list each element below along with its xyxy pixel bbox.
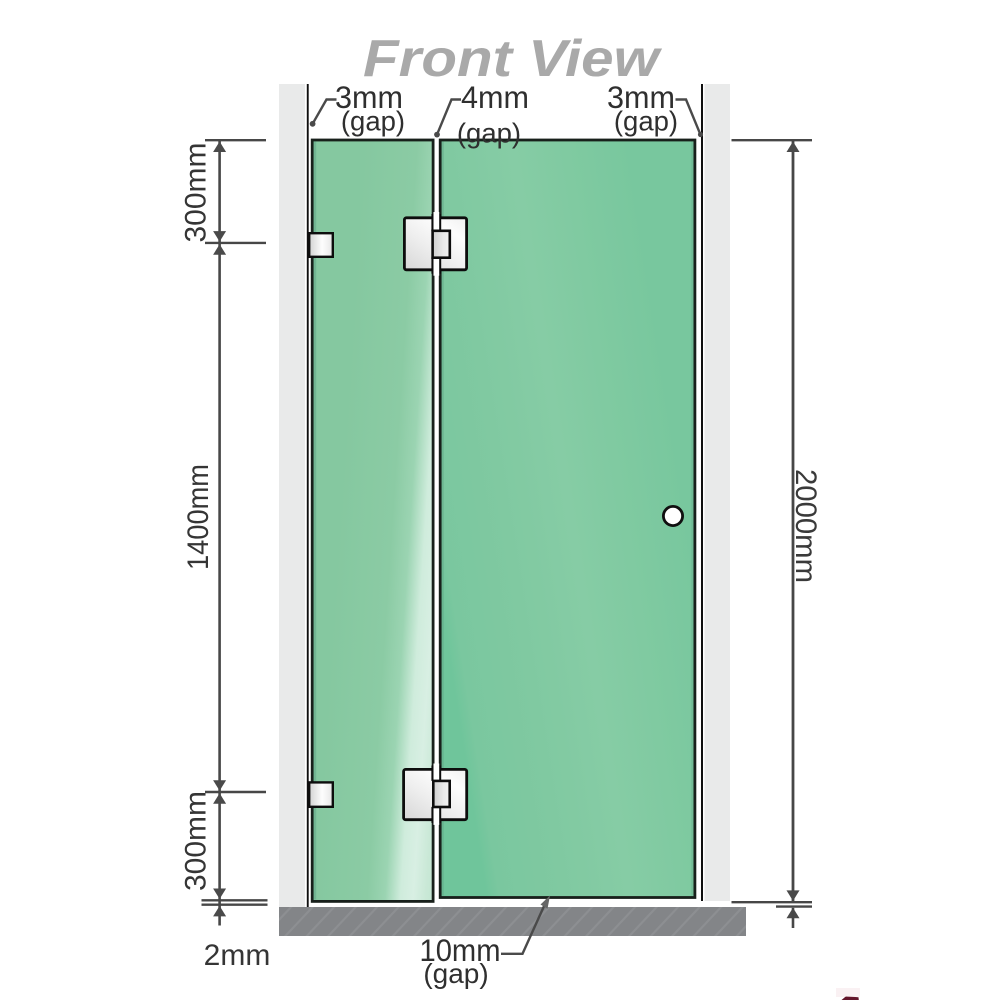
svg-text:300mm: 300mm xyxy=(180,791,213,891)
svg-text:2000mm: 2000mm xyxy=(789,469,822,583)
svg-text:(gap): (gap) xyxy=(457,118,521,149)
svg-text:(gap): (gap) xyxy=(614,106,678,137)
svg-text:(gap): (gap) xyxy=(341,106,405,137)
svg-text:2mm: 2mm xyxy=(204,939,271,972)
svg-text:(gap): (gap) xyxy=(423,958,488,989)
svg-text:1400mm: 1400mm xyxy=(182,464,215,570)
svg-text:4mm: 4mm xyxy=(461,79,529,115)
svg-text:300mm: 300mm xyxy=(180,142,213,242)
